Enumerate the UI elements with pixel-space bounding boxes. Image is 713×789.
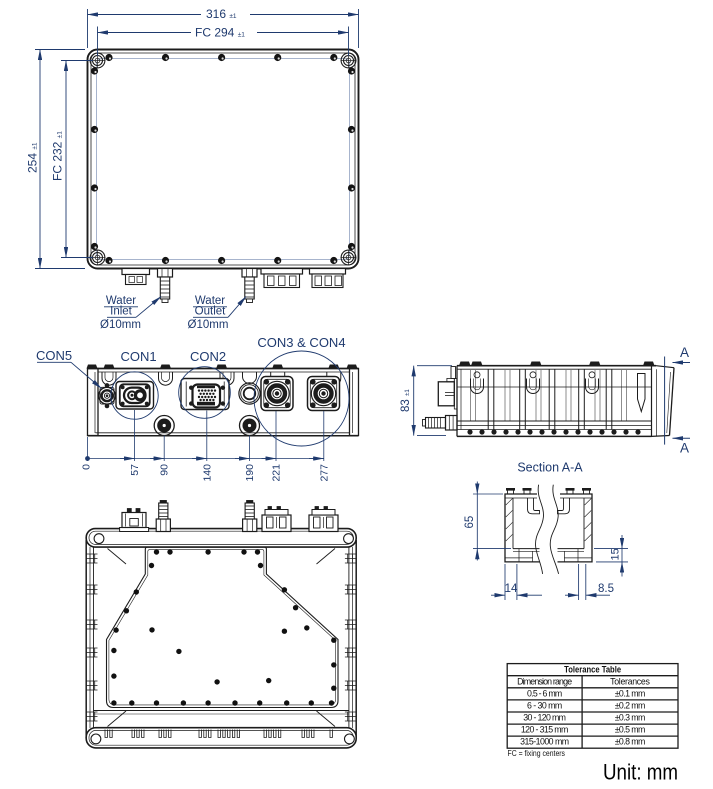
- svg-text:14: 14: [505, 583, 518, 595]
- svg-text:120 - 315 mm: 120 - 315 mm: [521, 725, 568, 735]
- svg-text:FC = fixing centers: FC = fixing centers: [508, 748, 566, 758]
- svg-text:57: 57: [129, 464, 141, 476]
- svg-text:140: 140: [201, 464, 213, 482]
- svg-text:316 ±1: 316 ±1: [206, 7, 237, 21]
- svg-text:A: A: [680, 441, 689, 456]
- svg-text:±0.8 mm: ±0.8 mm: [615, 737, 646, 747]
- svg-text:221: 221: [271, 464, 283, 482]
- svg-text:Section A-A: Section A-A: [517, 461, 583, 475]
- svg-text:A: A: [680, 345, 689, 360]
- svg-text:Ø10mm: Ø10mm: [188, 319, 229, 331]
- svg-text:8.5: 8.5: [598, 583, 614, 595]
- svg-text:0.5 - 6 mm: 0.5 - 6 mm: [527, 688, 562, 698]
- svg-text:CON1: CON1: [120, 349, 156, 364]
- svg-text:Ø10mm: Ø10mm: [100, 319, 141, 331]
- svg-text:±0.5 mm: ±0.5 mm: [615, 725, 646, 735]
- svg-text:6 - 30 mm: 6 - 30 mm: [527, 701, 562, 711]
- svg-text:0: 0: [81, 464, 93, 470]
- svg-text:CON3 & CON4: CON3 & CON4: [257, 335, 345, 350]
- svg-text:Tolerances: Tolerances: [610, 676, 650, 686]
- svg-text:83 ±1: 83 ±1: [400, 389, 412, 412]
- svg-text:65: 65: [464, 516, 476, 529]
- svg-text:±0.2 mm: ±0.2 mm: [615, 701, 646, 711]
- svg-text:CON2: CON2: [190, 349, 226, 364]
- svg-text:30 - 120 mm: 30 - 120 mm: [523, 713, 566, 723]
- svg-text:315-1000 mm: 315-1000 mm: [520, 737, 569, 747]
- svg-text:FC 232 ±1: FC 232 ±1: [51, 131, 65, 181]
- svg-text:CON5: CON5: [36, 348, 72, 363]
- svg-text:Unit: mm: Unit: mm: [603, 760, 678, 785]
- svg-text:±0.1 mm: ±0.1 mm: [615, 688, 646, 698]
- svg-text:Dimension range: Dimension range: [517, 676, 572, 686]
- svg-text:15: 15: [610, 548, 622, 560]
- svg-text:Tolerance Table: Tolerance Table: [564, 664, 621, 675]
- svg-text:±0.3 mm: ±0.3 mm: [615, 713, 646, 723]
- svg-text:277: 277: [318, 464, 330, 482]
- svg-text:Outlet: Outlet: [195, 306, 226, 318]
- svg-text:Inlet: Inlet: [110, 306, 133, 318]
- svg-text:FC 294 ±1: FC 294 ±1: [195, 26, 245, 40]
- svg-text:254 ±1: 254 ±1: [26, 142, 40, 173]
- svg-text:190: 190: [244, 464, 256, 482]
- svg-text:90: 90: [159, 464, 171, 476]
